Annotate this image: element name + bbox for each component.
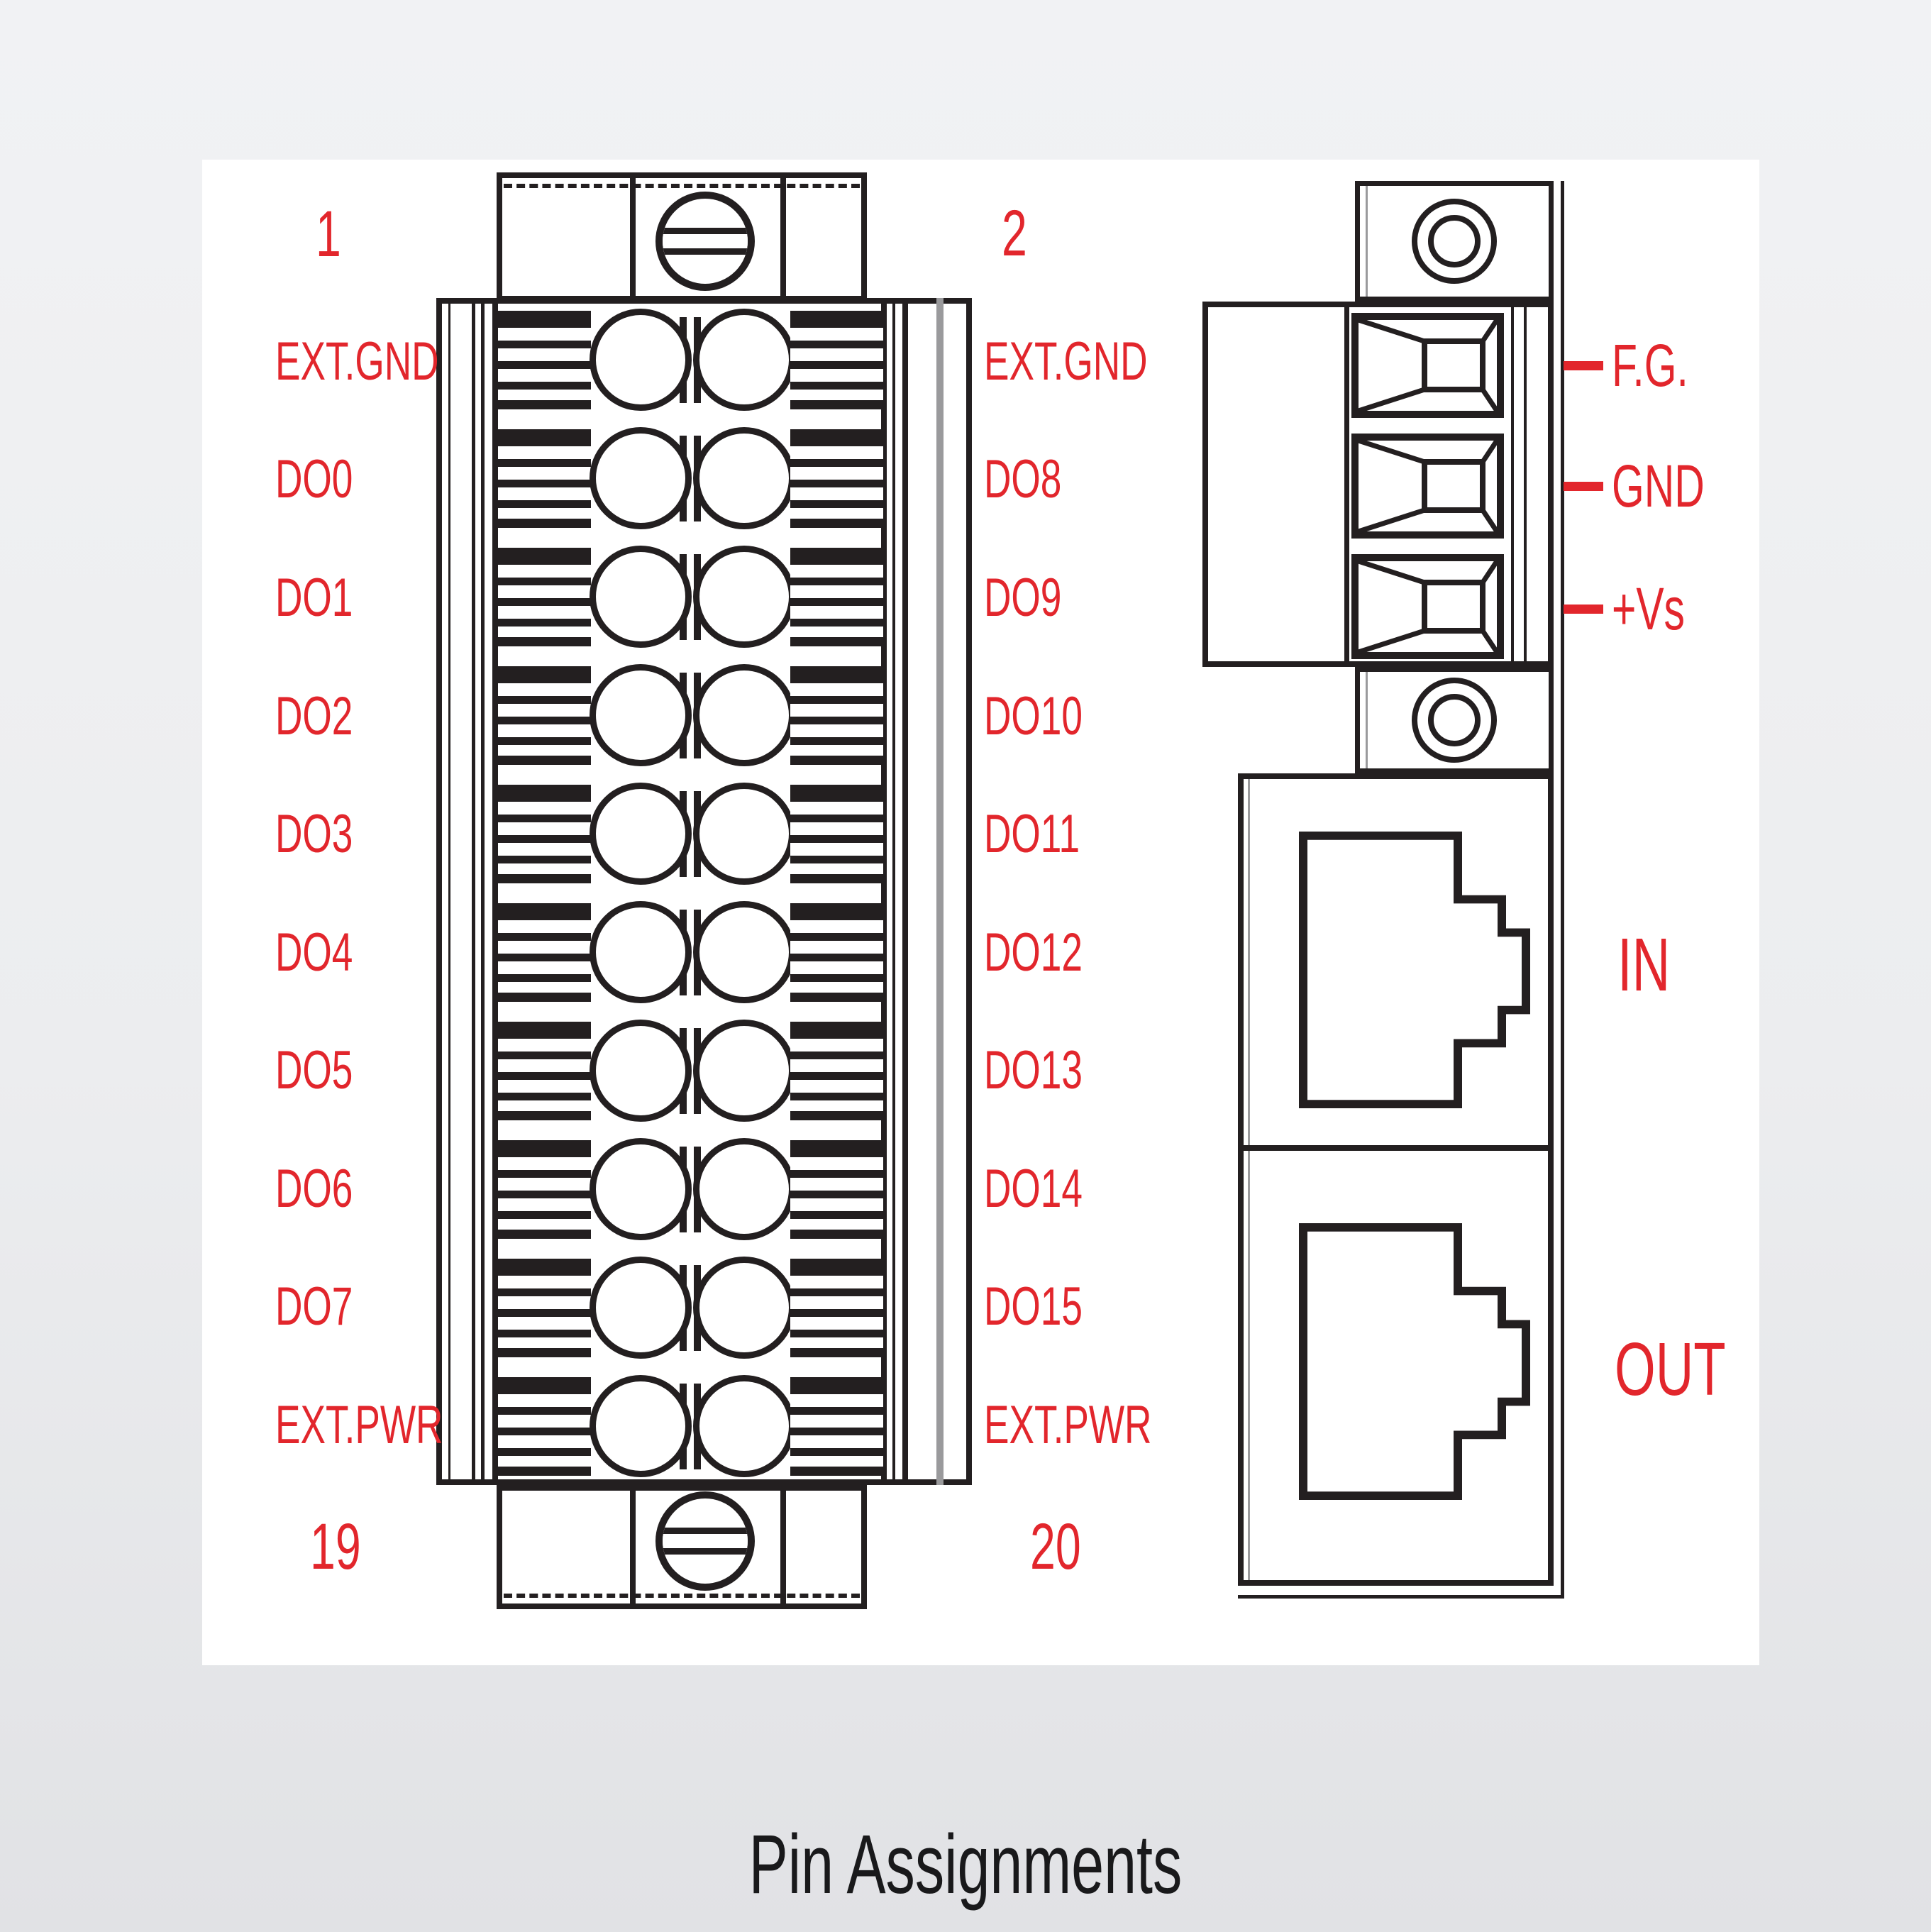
power-terminal-label: GND [1612,454,1705,518]
wire-hole [590,1375,692,1477]
wire-hole [693,1375,795,1477]
pin-label-right: EXT.PWR [984,1393,1151,1457]
contact-row [436,893,972,1012]
contact-row [436,1249,972,1367]
contact-hatch [498,785,591,883]
pin-label-right: DO14 [984,1157,1083,1221]
pin-label-left: DO1 [275,566,353,630]
bracket-divider [780,1491,786,1603]
wire-hole [590,1020,692,1122]
pin-label-right: DO11 [984,802,1080,866]
contact-row [436,419,972,538]
screw-slot [663,1528,748,1555]
rj45-jack-icon [1299,832,1530,1108]
contact-hatch [498,1022,591,1120]
screw-icon [655,1491,755,1591]
pin-label-right: DO8 [984,448,1061,512]
screw-slot [663,228,748,255]
contact-hatch [498,429,591,528]
terminal-pointer-line [1564,482,1603,491]
bracket-divider [630,178,636,296]
contact-hatch [790,1259,883,1357]
wire-hole [693,901,795,1003]
pin-label-left: EXT.PWR [275,1393,443,1457]
contact-row [436,775,972,893]
pin-label-right: DO15 [984,1275,1083,1339]
wire-hole [590,546,692,648]
contact-hatch [790,311,883,409]
contact-row [436,656,972,775]
port-label-in: IN [1617,922,1670,1008]
contact-hatch [790,666,883,765]
wire-hole [693,309,795,411]
wire-hole [693,664,795,766]
wire-hole [590,664,692,766]
page-title: Pin Assignments [289,1816,1641,1913]
connector-divider [1344,307,1349,661]
wire-clamp-socket-icon [1351,313,1504,418]
bracket-divider [630,1491,636,1603]
mounting-plate [1355,667,1554,773]
wire-clamp-socket-icon [1351,554,1504,659]
panel-inner-line [1248,779,1250,1580]
contact-row [436,1130,972,1249]
wire-hole [693,1020,795,1122]
plate-inner-line [1366,186,1368,297]
screw-icon [655,192,755,291]
pin-number-bottom-right: 20 [1030,1511,1081,1582]
wire-hole [590,783,692,885]
screw-hole-icon [1412,678,1497,763]
contact-hatch [498,903,591,1002]
power-terminal-label: F.G. [1612,333,1688,397]
contact-hatch [498,548,591,646]
pin-assignments-diagram: 1 2 19 20 EXT.GND DO0 DO1 DO2 DO3 DO4 DO… [0,0,1931,1932]
wire-hole [590,901,692,1003]
casing-outline [1561,181,1564,1599]
contact-hatch [498,1140,591,1239]
pin-label-left: DO5 [275,1039,353,1103]
terminal-pointer-line [1564,361,1603,370]
contact-hatch [790,429,883,528]
wire-hole [590,309,692,411]
contact-hatch [790,1022,883,1120]
plate-inner-line [1366,672,1368,768]
contact-row [436,301,972,419]
bracket-divider [780,178,786,296]
bracket-edge-line [504,184,860,188]
pin-number-bottom-left: 19 [310,1511,361,1582]
top-mounting-bracket [497,172,867,302]
connector-line [1524,307,1527,661]
pin-label-left: DO2 [275,685,353,749]
connector-line [1511,307,1514,661]
bracket-edge-line [504,1594,860,1598]
rj45-jack-icon [1299,1223,1530,1500]
screw-hole-inner [1428,694,1481,746]
contact-hatch [498,1259,591,1357]
pin-number-top-right: 2 [1002,198,1027,269]
wire-hole [590,1138,692,1240]
pin-label-left: EXT.GND [275,330,439,394]
screw-hole-inner [1428,215,1481,267]
pin-label-right: DO10 [984,685,1083,749]
pin-label-right: DO12 [984,921,1083,985]
pin-label-right: EXT.GND [984,330,1148,394]
wire-hole [590,427,692,529]
wire-hole [693,546,795,648]
mounting-plate [1355,181,1554,302]
wire-hole [693,1257,795,1359]
contact-hatch [498,311,591,409]
wire-hole [590,1257,692,1359]
contact-hatch [790,903,883,1002]
bottom-mounting-bracket [497,1485,867,1609]
pin-label-left: DO4 [275,921,353,985]
pin-number-top-left: 1 [316,199,341,270]
wire-clamp-socket-icon [1351,434,1504,539]
contact-row [436,538,972,656]
contact-hatch [498,1377,591,1476]
wire-hole [693,1138,795,1240]
port-divider [1244,1145,1548,1151]
pin-label-right: DO13 [984,1039,1083,1103]
terminal-pointer-line [1564,605,1603,614]
pin-label-left: DO3 [275,802,353,866]
port-label-out: OUT [1615,1327,1726,1412]
power-connector [1202,302,1554,667]
contact-hatch [790,785,883,883]
wire-hole [693,427,795,529]
contact-row [436,1012,972,1130]
contact-hatch [498,666,591,765]
pin-label-right: DO9 [984,566,1061,630]
contact-hatch [790,548,883,646]
contact-hatch [790,1140,883,1239]
pin-label-left: DO6 [275,1157,353,1221]
contact-hatch [790,1377,883,1476]
power-terminal-label: +Vs [1612,577,1685,641]
wire-hole [693,783,795,885]
contact-row [436,1367,972,1486]
casing-outline [1238,1595,1564,1599]
ethernet-port-block [1238,773,1554,1586]
pin-label-left: DO0 [275,448,353,512]
screw-hole-icon [1412,199,1497,284]
pin-label-left: DO7 [275,1275,353,1339]
